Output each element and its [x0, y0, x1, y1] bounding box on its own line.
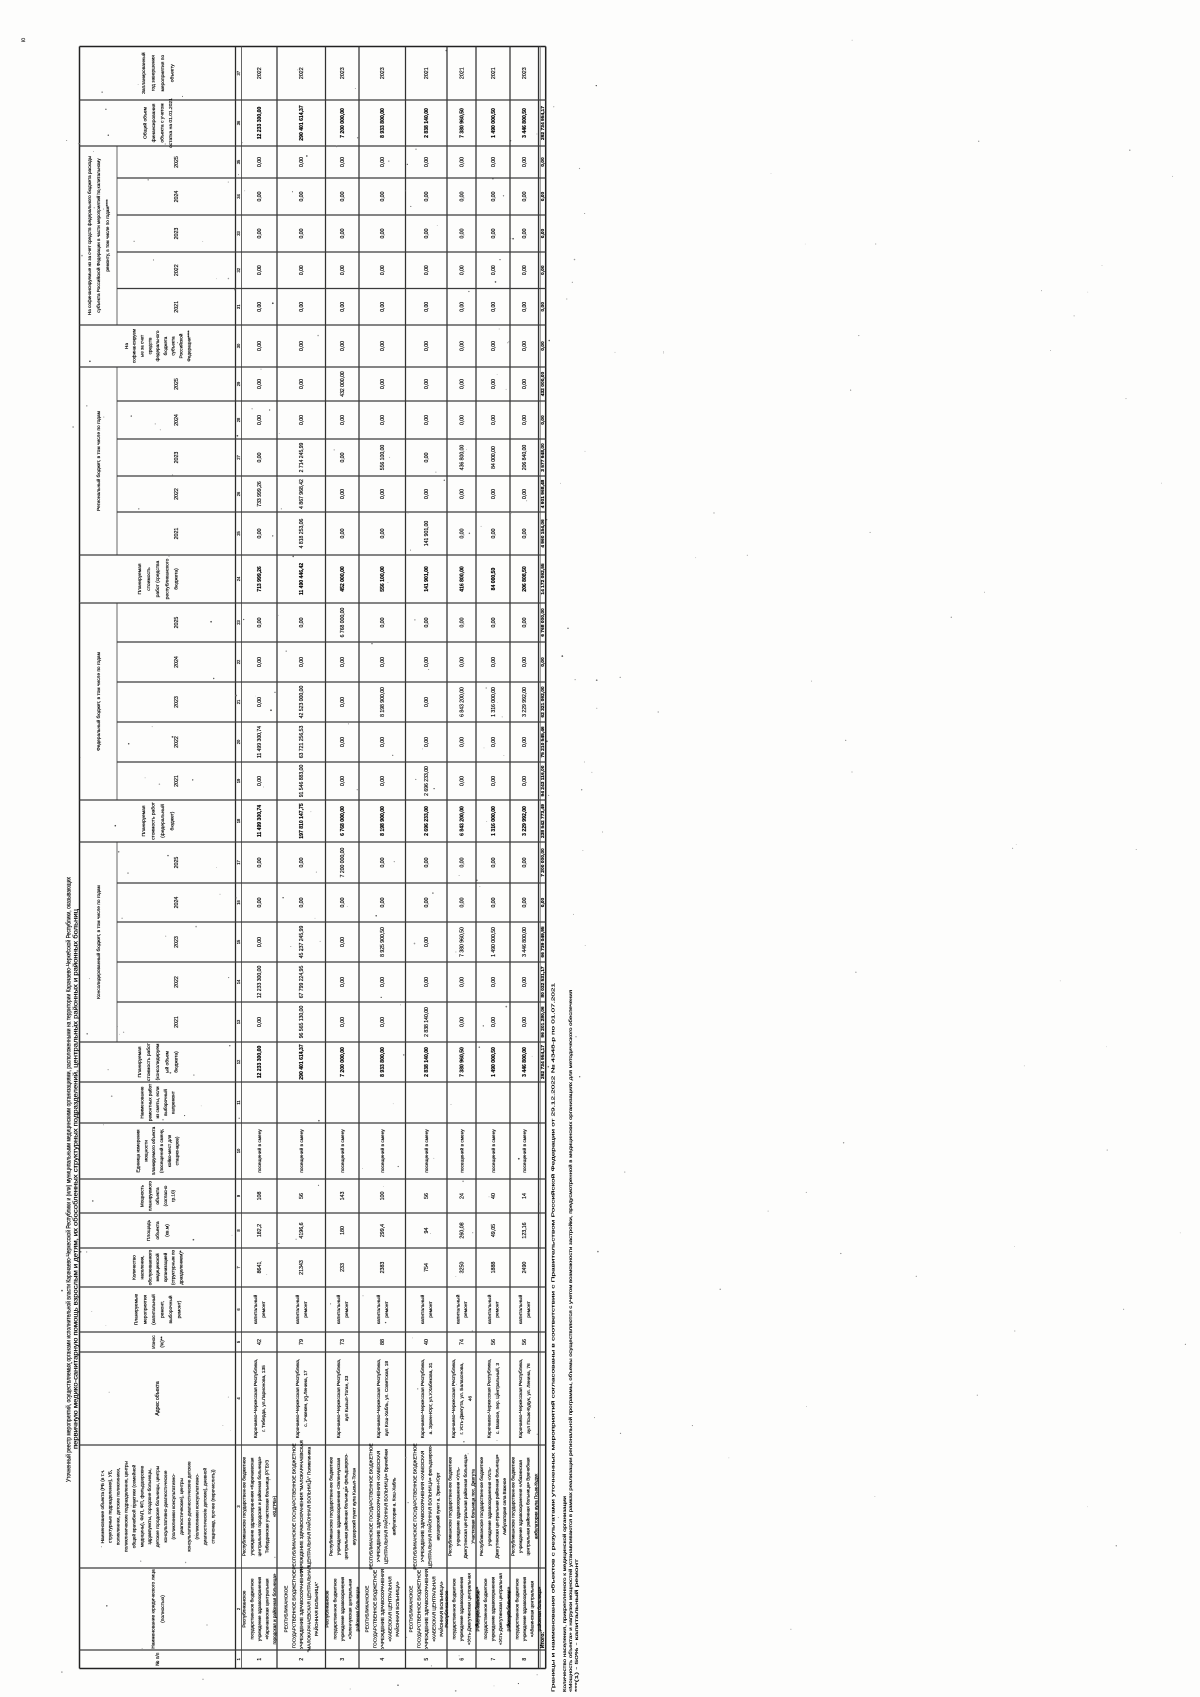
svg-text:0,00: 0,00	[459, 157, 465, 167]
svg-text:5: 5	[424, 1658, 430, 1661]
svg-text:6 843 200,00: 6 843 200,00	[459, 806, 465, 836]
svg-text:0,00: 0,00	[340, 452, 346, 462]
svg-text:Карачаево-Черкесская Республик: Карачаево-Черкесская Республика,	[487, 1359, 493, 1439]
svg-text:34: 34	[236, 194, 241, 199]
svg-text:Республиканское государственно: Республиканское государственное бюджетно…	[329, 1456, 334, 1556]
svg-text:(консолидируем: (консолидируем	[155, 1043, 161, 1080]
svg-text:74: 74	[459, 1339, 465, 1345]
svg-text:0,00: 0,00	[380, 191, 386, 201]
svg-text:0,00: 0,00	[380, 157, 386, 167]
svg-text:0,00: 0,00	[491, 617, 497, 627]
svg-text:0,00: 0,00	[257, 657, 263, 667]
svg-text:14 172 092,55: 14 172 092,55	[540, 563, 546, 595]
svg-text:бюджета: бюджета	[163, 336, 168, 355]
svg-text:452 000,00: 452 000,00	[340, 566, 346, 592]
svg-text:районная больница»: районная больница»	[536, 1586, 542, 1631]
svg-text:35: 35	[236, 159, 241, 164]
svg-text:0,00: 0,00	[299, 657, 305, 667]
svg-text:18: 18	[236, 818, 241, 823]
svg-text:поликлинические подразделения,: поликлинические подразделения, центры	[124, 1460, 129, 1551]
svg-text:1 316 000,00: 1 316 000,00	[491, 687, 497, 717]
svg-text:0,00: 0,00	[340, 228, 346, 238]
svg-text:1: 1	[257, 1658, 263, 1661]
svg-text:3 446 800,00: 3 446 800,00	[522, 927, 528, 957]
svg-text:посещений в смену: посещений в смену	[458, 1129, 465, 1173]
svg-text:13: 13	[236, 1019, 241, 1024]
svg-text:0,00: 0,00	[522, 657, 528, 667]
svg-text:0,00: 0,00	[491, 415, 497, 425]
svg-text:0,00: 0,00	[340, 415, 346, 425]
svg-text:17: 17	[236, 860, 241, 865]
svg-text:0,00: 0,00	[491, 528, 497, 538]
svg-text:Карачаево-Черкесская Республик: Карачаево-Черкесская Республика,	[518, 1359, 524, 1439]
svg-text:27: 27	[236, 455, 241, 460]
svg-text:0,00: 0,00	[522, 379, 528, 389]
svg-text:Наименование юридического лица: Наименование юридического лица	[150, 1569, 156, 1649]
svg-text:федерального: федерального	[155, 330, 160, 361]
svg-text:объекта: объекта	[155, 1187, 160, 1205]
svg-text:22: 22	[236, 659, 241, 664]
svg-text:0,00: 0,00	[522, 617, 528, 627]
svg-text:ремонт: ремонт	[429, 1301, 434, 1318]
svg-text:Уточненный реестр мероприятий,: Уточненный реестр мероприятий, осуществл…	[66, 877, 73, 1482]
svg-text:0,00: 0,00	[257, 191, 263, 201]
svg-text:капремонт: капремонт	[171, 1090, 176, 1114]
svg-text:акушерский пункт а. Эркен-Юрт: акушерский пункт а. Эркен-Юрт	[434, 1472, 440, 1541]
svg-text:«Зеленчукская центральная: «Зеленчукская центральная	[348, 1578, 353, 1639]
svg-text:2022: 2022	[299, 67, 305, 79]
svg-text:2023: 2023	[174, 696, 180, 708]
svg-text:143: 143	[340, 1192, 346, 1201]
svg-text:объекта: объекта	[155, 1221, 161, 1240]
svg-text:«Карачаевская центральная: «Карачаевская центральная	[265, 1578, 270, 1639]
svg-text:2021: 2021	[174, 528, 180, 540]
svg-text:Адрес объекта: Адрес объекта	[155, 1381, 161, 1416]
svg-text:21343: 21343	[299, 1260, 305, 1275]
svg-text:62 321 092,00: 62 321 092,00	[540, 686, 546, 718]
svg-text:11 499 300,74: 11 499 300,74	[257, 726, 263, 758]
svg-text:14: 14	[522, 1193, 528, 1199]
svg-text:56: 56	[491, 1339, 497, 1345]
svg-text:субъекта Российской Федерации: субъекта Российской Федерации в части ме…	[95, 158, 101, 313]
svg-text:ремонт: ремонт	[527, 1301, 532, 1318]
svg-text:мероприятия: мероприятия	[143, 1294, 148, 1324]
svg-text:0,00: 0,00	[522, 1017, 528, 1027]
svg-text:0,00: 0,00	[257, 228, 263, 238]
svg-text:государственное бюджетное: государственное бюджетное	[483, 1578, 488, 1639]
svg-text:16: 16	[236, 900, 241, 905]
svg-text:12 233 300,00: 12 233 300,00	[257, 966, 263, 999]
svg-text:ЦЕНТРАЛЬНАЯ РАЙОННАЯ БОЛЬНИЦА": ЦЕНТРАЛЬНАЯ РАЙОННАЯ БОЛЬНИЦА" Поликлини…	[305, 1447, 312, 1567]
svg-text:ремонт): ремонт)	[177, 1300, 183, 1318]
svg-text:0,00: 0,00	[257, 857, 263, 867]
svg-text:организацией: организацией	[162, 1252, 168, 1282]
svg-text:Количество населения, прикрепл: Количество населения, прикрепленного к м…	[561, 1495, 567, 1692]
svg-text:0,00: 0,00	[340, 776, 346, 786]
svg-text:123,16: 123,16	[522, 1222, 528, 1238]
svg-text:0,00: 0,00	[257, 265, 263, 275]
svg-text:25: 25	[236, 531, 241, 536]
svg-text:23: 23	[236, 620, 241, 625]
svg-text:4 818 253,06: 4 818 253,06	[299, 518, 305, 548]
svg-text:учреждение здравоохранения «Аб: учреждение здравоохранения «Абазинская	[518, 1460, 523, 1553]
svg-text:56: 56	[424, 1193, 430, 1199]
svg-text:0,00: 0,00	[380, 737, 386, 747]
svg-text:19: 19	[236, 778, 241, 783]
svg-text:объекта с учетом: объекта с учетом	[160, 103, 166, 143]
svg-text:0,00: 0,00	[459, 191, 465, 201]
svg-text:290 401 614,37: 290 401 614,37	[299, 105, 305, 141]
svg-text:На: На	[124, 343, 129, 349]
svg-text:«Абазинская центральная: «Абазинская центральная	[530, 1580, 535, 1637]
svg-text:ремонт: ремонт	[304, 1301, 309, 1318]
svg-text:0,00: 0,00	[257, 617, 263, 627]
svg-text:2022: 2022	[174, 488, 180, 500]
svg-text:0,00: 0,00	[380, 341, 386, 351]
svg-text:14: 14	[236, 979, 241, 984]
svg-text:0,00: 0,00	[257, 157, 263, 167]
svg-text:0,00: 0,00	[491, 489, 497, 499]
svg-text:0,00: 0,00	[299, 265, 305, 275]
svg-text:посещений в смену: посещений в смену	[298, 1129, 305, 1173]
svg-text:посещений в смену: посещений в смену	[423, 1129, 430, 1173]
svg-text:56: 56	[522, 1339, 528, 1345]
svg-text:0,00: 0,00	[459, 737, 465, 747]
svg-text:Карачаево-Черкесская Республик: Карачаево-Черкесская Республика,	[336, 1359, 342, 1439]
svg-text:2023: 2023	[522, 67, 528, 79]
svg-text:0,00: 0,00	[340, 489, 346, 499]
svg-text:Республиканское: Республиканское	[507, 1590, 512, 1627]
svg-text:республиканского: республиканского	[164, 558, 170, 599]
svg-text:2490: 2490	[522, 1262, 528, 1274]
svg-text:«Усть-Джегутинская центральная: «Усть-Джегутинская центральная	[467, 1573, 472, 1645]
svg-text:0,00: 0,00	[522, 857, 528, 867]
svg-text:37: 37	[236, 70, 241, 75]
svg-text:0,00: 0,00	[459, 977, 465, 987]
svg-text:0,00: 0,00	[340, 265, 346, 275]
svg-text:планируемого: планируемого	[147, 1181, 152, 1211]
svg-text:0,00: 0,00	[424, 617, 430, 627]
svg-text:0,00: 0,00	[340, 737, 346, 747]
svg-text:0,00: 0,00	[257, 452, 263, 462]
svg-text:0,00: 0,00	[424, 157, 430, 167]
svg-text:0,00: 0,00	[257, 697, 263, 707]
svg-text:Джегутинская центральная район: Джегутинская центральная районная больни…	[493, 1454, 499, 1559]
svg-text:2021: 2021	[459, 67, 465, 79]
svg-text:733 999,26: 733 999,26	[257, 481, 263, 507]
svg-text:Планируемая: Планируемая	[137, 1046, 143, 1077]
svg-text:стационаров): стационаров)	[175, 1136, 180, 1165]
svg-text:На софинансируемые из за счет: На софинансируемые из за счет средств фе…	[87, 156, 92, 315]
svg-text:290 401 614,37: 290 401 614,37	[299, 1044, 305, 1080]
svg-text:7 380 960,50: 7 380 960,50	[459, 927, 465, 957]
svg-text:аул Кызыл-Тоган, 33: аул Кызыл-Тоган, 33	[344, 1375, 350, 1421]
svg-text:556 100,00: 556 100,00	[380, 566, 386, 592]
svg-text:мероприятия по: мероприятия по	[161, 55, 166, 92]
svg-text:0,00: 0,00	[522, 415, 528, 425]
svg-text:РЕСПУБЛИКАНСКОЕ: РЕСПУБЛИКАНСКОЕ	[284, 1586, 289, 1633]
svg-text:0,00: 0,00	[522, 265, 528, 275]
svg-text:год завершения: год завершения	[151, 55, 156, 92]
svg-text:0,00: 0,00	[299, 415, 305, 425]
svg-text:141 901,00: 141 901,00	[424, 566, 430, 592]
svg-text:аул Кош-Хабль, ул. Советская,: аул Кош-Хабль, ул. Советская, 18	[384, 1361, 390, 1437]
svg-text:субъекта: субъекта	[171, 336, 176, 356]
svg-text:центральная городская и районн: центральная городская и районная больниц…	[256, 1456, 262, 1556]
svg-text:Карачаево-Черкесская Республик: Карачаево-Черкесская Республика,	[376, 1359, 382, 1439]
svg-text:0,00: 0,00	[424, 657, 430, 667]
svg-text:2: 2	[299, 1658, 305, 1661]
svg-text:бюджета): бюджета)	[174, 1051, 180, 1073]
svg-text:8 933 800,00: 8 933 800,00	[380, 1047, 386, 1077]
svg-text:стоимость работ: стоимость работ	[146, 1042, 152, 1081]
svg-text:108: 108	[257, 1192, 263, 1201]
svg-text:0,00: 0,00	[380, 228, 386, 238]
svg-text:государственное бюджетное: государственное бюджетное	[249, 1578, 254, 1639]
svg-text:2023: 2023	[174, 228, 180, 240]
svg-text:Региональный бюджет, в том чис: Региональный бюджет, в том числе по года…	[95, 411, 102, 511]
svg-text:ремонт: ремонт	[385, 1301, 390, 1318]
svg-text:0,00: 0,00	[459, 415, 465, 425]
svg-text:посещений в смену: посещений в смену	[256, 1129, 263, 1173]
svg-text:100: 100	[380, 1192, 386, 1201]
svg-text:РЕСПУБЛИКАНСКОЕ ГОСУДАРСТВЕННО: РЕСПУБЛИКАНСКОЕ ГОСУДАРСТВЕННОЕ БЮДЖЕТНО…	[291, 1443, 296, 1569]
svg-text:292 734 954,17: 292 734 954,17	[540, 106, 546, 140]
svg-text:0,00: 0,00	[257, 341, 263, 351]
svg-text:3 229 992,00: 3 229 992,00	[522, 687, 528, 717]
svg-text:0,00: 0,00	[380, 657, 386, 667]
svg-text:0,00: 0,00	[522, 528, 528, 538]
svg-text:0,00: 0,00	[491, 265, 497, 275]
svg-text:2025: 2025	[174, 617, 180, 629]
svg-text:3 446 800,50: 3 446 800,50	[522, 108, 528, 138]
svg-text:88: 88	[380, 1339, 386, 1345]
svg-text:0,00: 0,00	[522, 776, 528, 786]
svg-text:медицины), ФАП, ФП, фельдшерск: медицины), ФАП, ФП, фельдшерские	[139, 1465, 144, 1547]
svg-text:0,00: 0,00	[340, 528, 346, 538]
svg-text:206 808,50: 206 808,50	[522, 566, 528, 592]
svg-text:Карачаево-Черкесская Республик: Карачаево-Черкесская Республика,	[451, 1359, 457, 1439]
svg-text:0,00: 0,00	[459, 228, 465, 238]
svg-text:Республиканское: Республиканское	[325, 1590, 330, 1627]
svg-text:учреждение здравоохранения «Ка: учреждение здравоохранения «Карачаевская	[249, 1457, 254, 1555]
svg-text:посещений в смену: посещений в смену	[379, 1129, 386, 1173]
svg-text:0,00: 0,00	[257, 528, 263, 538]
svg-text:0,00: 0,00	[491, 341, 497, 351]
svg-text:0,00: 0,00	[424, 302, 430, 312]
svg-text:Границы и наименования объекто: Границы и наименования объектов с резуль…	[550, 982, 556, 1692]
svg-text:УЧРЕЖДЕНИЕ ЗДРАВООХРАНЕНИЯ: УЧРЕЖДЕНИЕ ЗДРАВООХРАНЕНИЯ	[424, 1569, 429, 1649]
svg-text:0,00: 0,00	[380, 528, 386, 538]
svg-text:УЧРЕЖДЕНИЕ ЗДРАВООХРАНЕНИЯ: УЧРЕЖДЕНИЕ ЗДРАВООХРАНЕНИЯ	[380, 1569, 385, 1649]
svg-text:ремонтных работ: ремонтных работ	[147, 1083, 152, 1121]
svg-text:94 243 116,00: 94 243 116,00	[540, 765, 546, 796]
svg-text:капитальный: капитальный	[517, 1294, 524, 1324]
svg-text:49,05: 49,05	[491, 1224, 497, 1237]
svg-text:91 546 883,00: 91 546 883,00	[299, 765, 305, 798]
svg-text:416 800,00: 416 800,00	[459, 566, 465, 592]
svg-text:капитальный: капитальный	[486, 1294, 493, 1324]
svg-text:государственное бюджетное: государственное бюджетное	[514, 1578, 519, 1639]
svg-text:государственное бюджетное: государственное бюджетное	[452, 1578, 457, 1639]
svg-text:7 200 000,00: 7 200 000,00	[540, 848, 546, 877]
svg-text:4: 4	[380, 1658, 386, 1661]
svg-text:0,00: 0,00	[522, 302, 528, 312]
svg-text:1 490 000,50: 1 490 000,50	[491, 927, 497, 957]
svg-text:Республиканское государственно: Республиканское государственное бюджетно…	[511, 1456, 516, 1556]
svg-text:стоимость работ: стоимость работ	[150, 801, 156, 840]
svg-text:капитальный: капитальный	[294, 1294, 301, 1324]
svg-text:12: 12	[236, 1059, 241, 1064]
svg-text:выборочный: выборочный	[167, 1295, 174, 1323]
svg-text:учреждение здравоохранения: учреждение здравоохранения	[522, 1576, 527, 1641]
svg-text:учреждение здравоохранения «Ус: учреждение здравоохранения «Усть-	[487, 1466, 492, 1546]
svg-text:0,00: 0,00	[299, 617, 305, 627]
svg-text:238 542 773,49: 238 542 773,49	[540, 804, 546, 838]
svg-text:6 768 000,00: 6 768 000,00	[340, 806, 346, 836]
svg-text:21: 21	[236, 699, 241, 704]
svg-text:0,00: 0,00	[424, 977, 430, 987]
svg-text:1 490 000,50: 1 490 000,50	[491, 1047, 497, 1077]
svg-text:0,00: 0,00	[540, 897, 546, 907]
svg-text:0,00: 0,00	[340, 341, 346, 351]
svg-text:0,00: 0,00	[424, 857, 430, 867]
svg-text:ремонт: ремонт	[262, 1301, 267, 1318]
svg-text:0,00: 0,00	[424, 341, 430, 351]
svg-text:0,00: 0,00	[380, 1017, 386, 1027]
svg-text:260,08: 260,08	[459, 1222, 465, 1238]
svg-text:«Мощность объекта» и нагрузки: «Мощность объекта» и нагрузки мощностей …	[567, 989, 573, 1692]
svg-text:(посещений в смену,: (посещений в смену,	[158, 1129, 164, 1173]
svg-text:капитальный: капитальный	[454, 1294, 461, 1324]
svg-text:2024: 2024	[174, 656, 180, 668]
svg-text:33: 33	[236, 231, 241, 236]
svg-text:Планируемые: Планируемые	[134, 1294, 140, 1326]
svg-text:2021: 2021	[174, 775, 180, 787]
svg-text:0,00: 0,00	[491, 191, 497, 201]
svg-text:28: 28	[236, 417, 241, 422]
svg-text:0,00: 0,00	[380, 379, 386, 389]
svg-text:диагностические детские), днев: диагностические детские), дневной	[202, 1467, 208, 1545]
svg-text:7 200 000,00: 7 200 000,00	[340, 847, 346, 877]
svg-text:0,00: 0,00	[380, 857, 386, 867]
svg-text:0,00: 0,00	[257, 379, 263, 389]
svg-text:7 380 960,50: 7 380 960,50	[459, 1047, 465, 1077]
svg-text:0,00: 0,00	[340, 977, 346, 987]
svg-text:2 838 140,00: 2 838 140,00	[424, 108, 430, 138]
svg-text:67 799 224,95: 67 799 224,95	[299, 966, 305, 999]
svg-text:***(1) - 50% - капитальный рем: ***(1) - 50% - капитальный ремонт	[573, 1557, 579, 1692]
svg-text:8 933 800,00: 8 933 800,00	[380, 108, 386, 138]
svg-text:ю: ю	[21, 37, 27, 42]
svg-text:2022: 2022	[174, 736, 180, 748]
svg-text:0,00: 0,00	[380, 415, 386, 425]
svg-text:0,00: 0,00	[522, 341, 528, 351]
svg-text:мощности: мощности	[143, 1140, 148, 1162]
svg-text:софинансируем: софинансируем	[132, 329, 137, 363]
svg-text:Наименование объекта (РБ (в т.: Наименование объекта (РБ (в т.ч.	[100, 1470, 105, 1544]
svg-text:выборочный: выборочный	[162, 1089, 168, 1116]
svg-text:центральная районная больница»: центральная районная больница» Врачебная	[525, 1457, 531, 1555]
svg-text:ремонт: ремонт	[345, 1301, 350, 1318]
svg-text:30: 30	[236, 343, 241, 348]
svg-text:0,00: 0,00	[459, 341, 465, 351]
svg-text:7: 7	[491, 1658, 497, 1661]
svg-text:а. Эркен-Юрт, ул.У.Хабекова, 3: а. Эркен-Юрт, ул.У.Хабекова, 31	[428, 1362, 434, 1434]
svg-text:(полностью): (полностью)	[160, 1595, 166, 1623]
svg-text:233: 233	[340, 1263, 346, 1272]
svg-text:Российской: Российской	[178, 333, 184, 358]
svg-text:0,00: 0,00	[459, 617, 465, 627]
svg-text:гр.10): гр.10)	[171, 1189, 176, 1202]
svg-text:2025: 2025	[174, 378, 180, 390]
svg-text:акушерский пункт аула Кызыл-То: акушерский пункт аула Кызыл-Тоган	[350, 1467, 356, 1545]
svg-text:капитальный: капитальный	[335, 1294, 342, 1324]
svg-text:0,00: 0,00	[340, 191, 346, 201]
svg-text:0,00: 0,00	[299, 379, 305, 389]
svg-text:2025: 2025	[174, 857, 180, 869]
svg-text:(согласно: (согласно	[163, 1185, 168, 1206]
svg-text:7 200 000,00: 7 200 000,00	[340, 1047, 346, 1077]
svg-text:94: 94	[424, 1228, 430, 1234]
svg-text:0,00: 0,00	[424, 415, 430, 425]
svg-text:«ХАБЕЗСКАЯ ЦЕНТРАЛЬНАЯ: «ХАБЕЗСКАЯ ЦЕНТРАЛЬНАЯ	[388, 1576, 393, 1641]
svg-text:299,4: 299,4	[380, 1224, 386, 1237]
svg-text:2383: 2383	[380, 1262, 386, 1274]
svg-text:84 000,00: 84 000,00	[491, 446, 497, 469]
svg-text:2 838 140,00: 2 838 140,00	[424, 1047, 430, 1077]
svg-text:Единица измерения: Единица измерения	[136, 1129, 141, 1172]
svg-text:работ (средства: работ (средства	[155, 560, 161, 597]
svg-text:2021: 2021	[424, 67, 430, 79]
svg-text:РЕСПУБЛИКАНСКОЕ: РЕСПУБЛИКАНСКОЕ	[365, 1586, 370, 1633]
svg-text:29: 29	[236, 381, 241, 386]
svg-text:0,00: 0,00	[299, 897, 305, 907]
svg-text:0,00: 0,00	[540, 228, 546, 238]
svg-text:0,00: 0,00	[340, 897, 346, 907]
svg-text:2 696 233,00: 2 696 233,00	[424, 806, 430, 836]
svg-text:0,00: 0,00	[540, 302, 546, 312]
svg-text:ГОСУДАРСТВЕННОЕ БЮДЖЕТНОЕ: ГОСУДАРСТВЕННОЕ БЮДЖЕТНОЕ	[372, 1570, 377, 1648]
svg-text:42: 42	[257, 1339, 263, 1345]
svg-text:24: 24	[459, 1193, 465, 1199]
svg-text:80 032 531,17: 80 032 531,17	[540, 966, 546, 998]
svg-text:31: 31	[236, 304, 241, 309]
svg-text:46: 46	[467, 1396, 473, 1402]
svg-text:остатка на 01.01.2021: остатка на 01.01.2021	[168, 98, 174, 148]
svg-text:20: 20	[236, 739, 241, 744]
svg-text:4 867 968,42: 4 867 968,42	[299, 479, 305, 509]
svg-text:0,00: 0,00	[540, 657, 546, 667]
svg-text:(кв.м): (кв.м)	[164, 1224, 170, 1237]
svg-text:Тебердинская участковая больни: Тебердинская участковая больница (РГБУЗ	[265, 1460, 270, 1554]
svg-text:2 838 140,00: 2 838 140,00	[424, 1007, 430, 1037]
svg-text:РЕСПУБЛИКАНСКОЕ ГОСУДАРСТВЕННО: РЕСПУБЛИКАНСКОЕ ГОСУДАРСТВЕННОЕ БЮДЖЕТНО…	[413, 1443, 418, 1569]
svg-text:Планируемая: Планируемая	[141, 805, 147, 836]
svg-text:36: 36	[236, 120, 241, 125]
svg-text:медицинской: медицинской	[154, 1253, 160, 1282]
svg-text:объекту: объекту	[170, 64, 176, 83]
svg-text:Республиканское: Республиканское	[444, 1590, 449, 1627]
svg-text:8 198 900,00: 8 198 900,00	[380, 687, 386, 717]
svg-text:0,00: 0,00	[491, 977, 497, 987]
svg-text:районная больница»: районная больница»	[354, 1586, 360, 1631]
svg-text:0,00: 0,00	[340, 657, 346, 667]
svg-text:0,00: 0,00	[424, 265, 430, 275]
svg-text:2024: 2024	[174, 191, 180, 203]
svg-text:206 840,00: 206 840,00	[522, 445, 528, 471]
svg-text:0,00: 0,00	[522, 157, 528, 167]
